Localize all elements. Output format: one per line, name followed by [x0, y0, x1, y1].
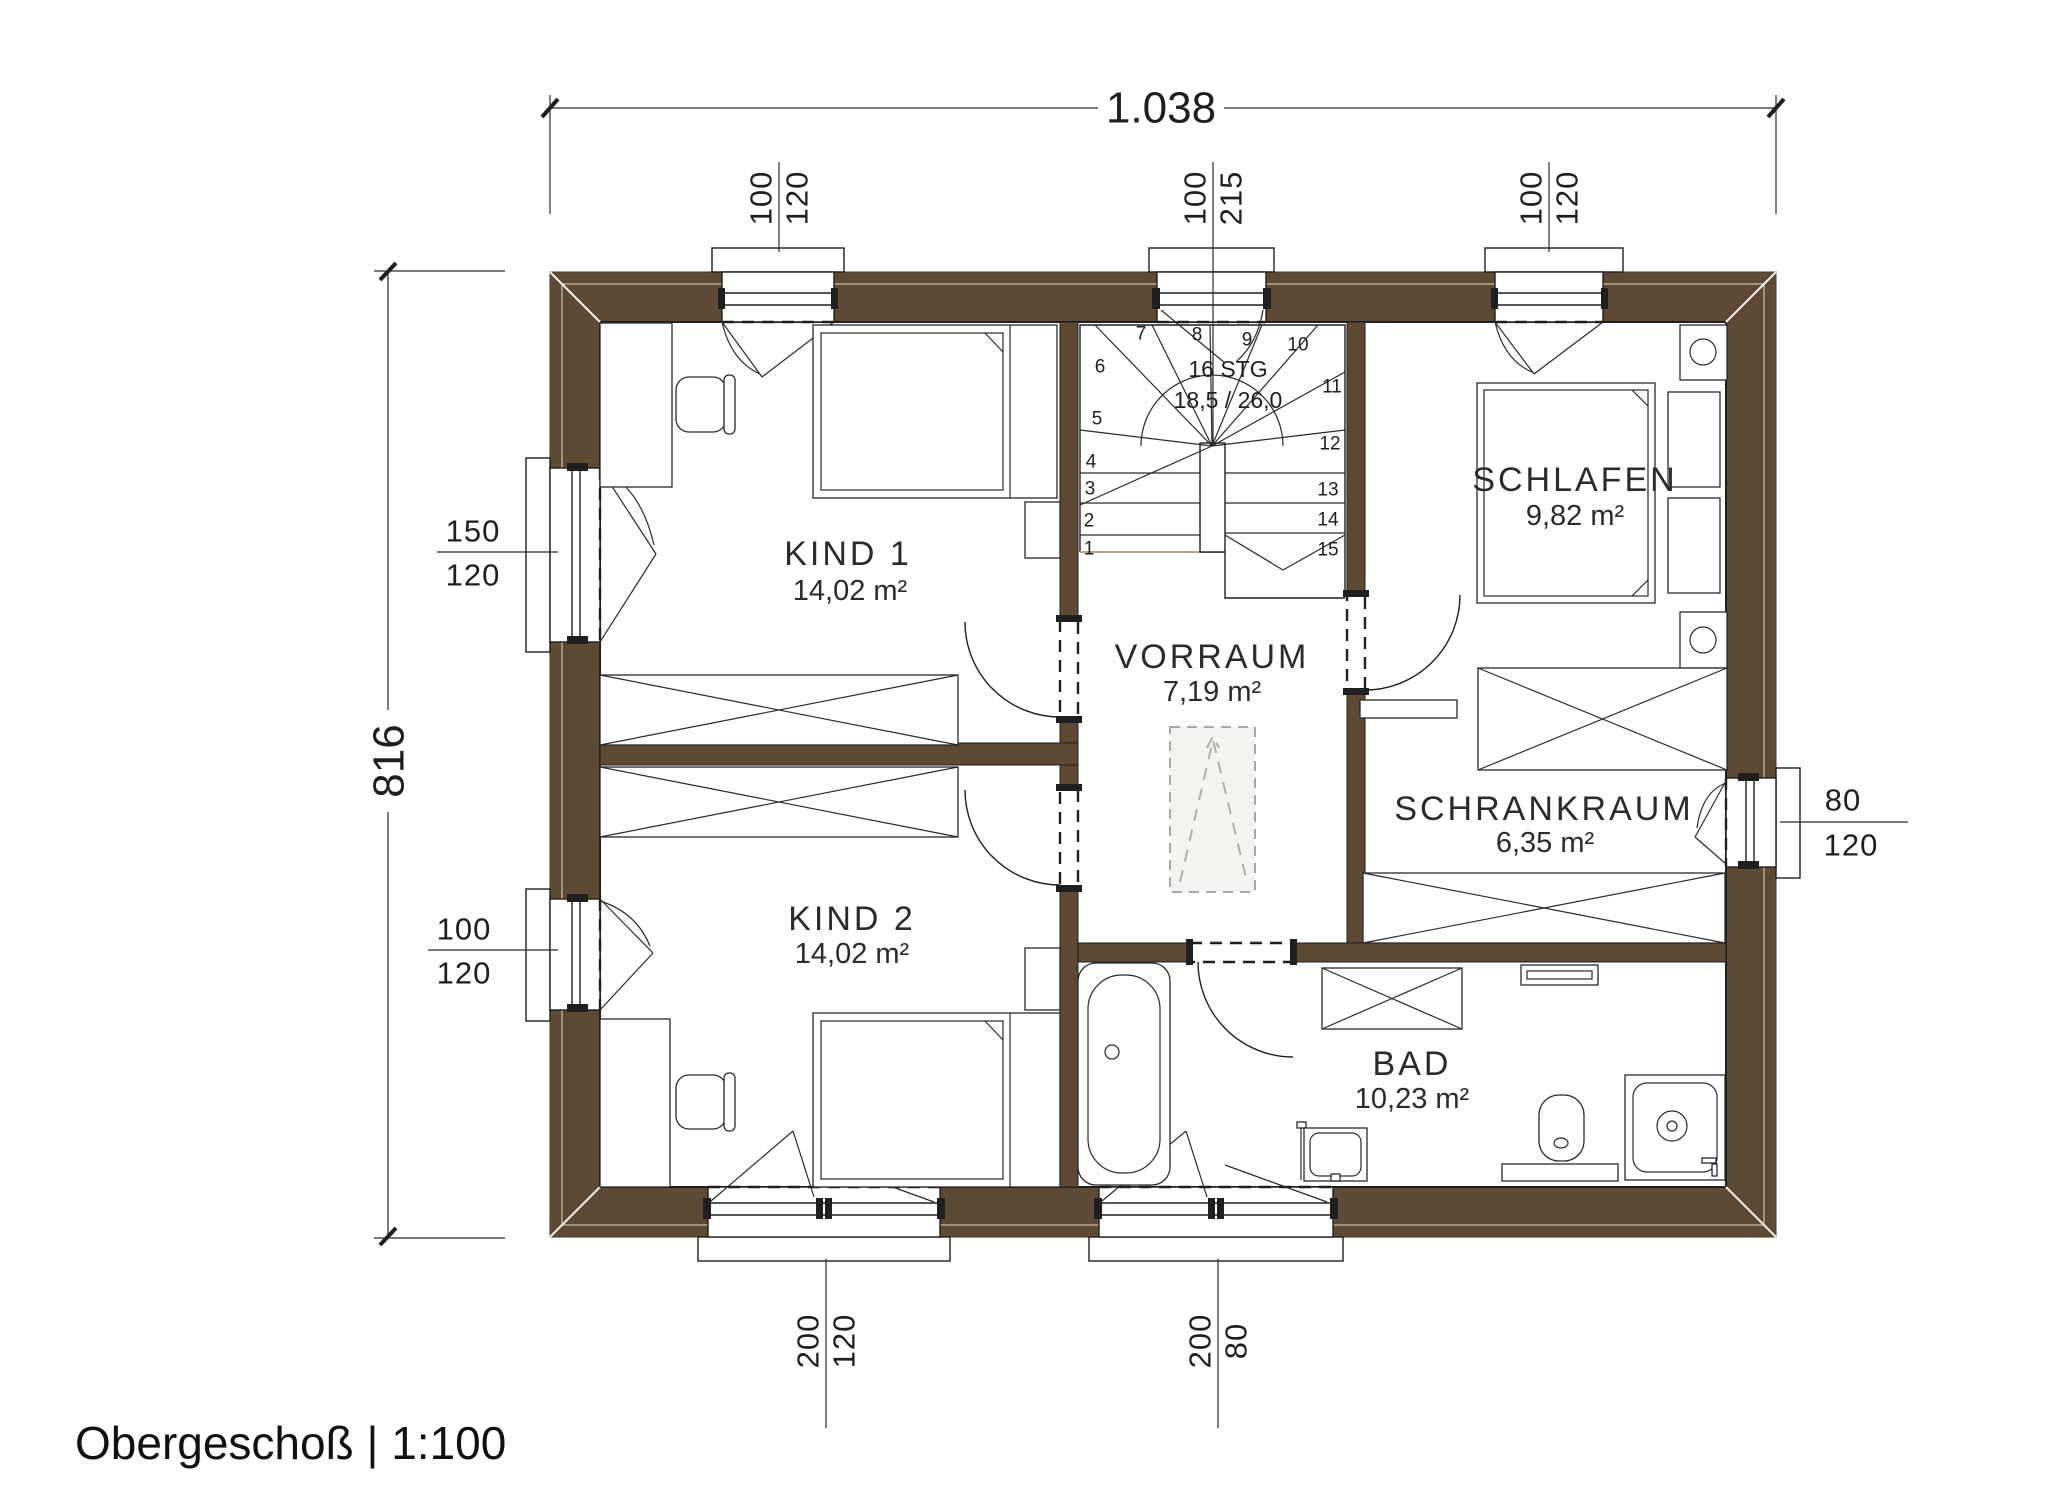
wall-kind-vorraum-upper [1060, 322, 1078, 620]
wall-shelf [1521, 965, 1598, 985]
door-bad [1186, 939, 1297, 1057]
shelf [1025, 948, 1060, 1010]
room-name-bad: BAD [1373, 1045, 1452, 1083]
svg-text:100: 100 [1178, 171, 1213, 226]
shower [1625, 1075, 1725, 1180]
room-name-kind1: KIND 1 [784, 535, 912, 573]
wall-vorraum-schlafen-upper [1347, 322, 1365, 595]
desk-chair-back [724, 375, 735, 434]
window-schrankraum-right [1695, 768, 1800, 878]
window-schlafen-top [1485, 248, 1623, 374]
svg-text:9: 9 [1242, 330, 1253, 351]
dimension-window-bottom-1: 200 120 [791, 1259, 862, 1428]
door-kind1 [965, 615, 1082, 723]
stair-spine [1200, 443, 1225, 552]
dimension-window-bottom-2: 200 80 [1183, 1259, 1254, 1428]
wall-bad-top [1293, 943, 1726, 962]
room-name-schrankraum: SCHRANKRAUM [1394, 790, 1693, 828]
wall-kind1-kind2 [600, 743, 1078, 765]
furniture-schlafen [1477, 325, 1727, 770]
bathtub [1078, 963, 1170, 1185]
room-area-kind2: 14,02 m² [795, 938, 910, 970]
attic-ladder-box [1170, 727, 1255, 892]
svg-text:120: 120 [827, 1314, 862, 1369]
svg-text:2: 2 [1084, 511, 1095, 532]
rail [1360, 700, 1457, 718]
desk-chair [676, 377, 726, 432]
svg-text:12: 12 [1319, 434, 1340, 455]
stair-steps-label: 16 STG [1188, 356, 1267, 382]
svg-text:80: 80 [1219, 1323, 1254, 1359]
svg-text:120: 120 [437, 956, 492, 991]
dimension-overall-width: 1.038 [542, 84, 1784, 215]
floorplan-page: 16 STG 18,5 / 26,0 1 2 3 4 5 6 7 8 9 10 … [0, 0, 2066, 1508]
room-name-kind2: KIND 2 [788, 900, 916, 938]
overall-height-value: 816 [365, 724, 414, 797]
dimension-overall-height: 816 [365, 263, 506, 1245]
wardrobe-schlafen [1478, 668, 1727, 770]
stair-rise-run-label: 18,5 / 26,0 [1174, 387, 1283, 413]
room-area-schrankraum: 6,35 m² [1496, 827, 1595, 859]
svg-text:100: 100 [744, 171, 779, 226]
svg-text:80: 80 [1825, 783, 1861, 818]
furniture-kind2 [600, 767, 1060, 1187]
wardrobe-schrankraum [1363, 873, 1725, 943]
door-kind2 [965, 784, 1082, 892]
room-name-vorraum: VORRAUM [1115, 638, 1310, 676]
svg-text:1: 1 [1084, 539, 1095, 560]
svg-text:150: 150 [446, 514, 501, 549]
room-area-kind1: 14,02 m² [793, 575, 908, 607]
nightstand [1025, 502, 1060, 558]
floorplan-drawing: 16 STG 18,5 / 26,0 1 2 3 4 5 6 7 8 9 10 … [0, 0, 2066, 1508]
overall-width-value: 1.038 [1106, 84, 1216, 133]
wall-vorraum-bad-left [1078, 943, 1190, 962]
desk [600, 1019, 670, 1187]
svg-text:14: 14 [1317, 510, 1339, 531]
svg-text:13: 13 [1317, 480, 1338, 501]
bad-cabinet [1322, 968, 1462, 1029]
svg-text:100: 100 [437, 912, 492, 947]
svg-text:200: 200 [791, 1314, 826, 1369]
room-area-bad: 10,23 m² [1355, 1083, 1470, 1115]
dimension-window-top-3: 100 120 [1514, 162, 1585, 252]
svg-text:11: 11 [1322, 377, 1342, 398]
side-table-bottom [1680, 612, 1727, 668]
svg-text:4: 4 [1086, 452, 1097, 473]
dimension-window-top-1: 100 120 [744, 162, 815, 252]
svg-text:120: 120 [1550, 171, 1585, 226]
bed [813, 325, 1057, 498]
room-area-schlafen: 9,82 m² [1526, 500, 1625, 532]
svg-text:7: 7 [1136, 324, 1147, 345]
side-table-top [1680, 325, 1727, 380]
desk-chair-back [724, 1073, 735, 1131]
room-name-schlafen: SCHLAFEN [1472, 461, 1677, 499]
svg-text:3: 3 [1085, 479, 1096, 500]
svg-text:120: 120 [780, 171, 815, 226]
wall-kind-vorraum-lower [1060, 888, 1078, 1187]
svg-text:215: 215 [1214, 171, 1249, 226]
furniture-kind1 [600, 323, 1060, 745]
svg-text:5: 5 [1092, 409, 1103, 430]
headboard-lower [1668, 498, 1720, 593]
bidet [1297, 1122, 1367, 1181]
toilet [1502, 1095, 1618, 1181]
room-area-vorraum: 7,19 m² [1163, 676, 1262, 708]
svg-text:100: 100 [1514, 171, 1549, 226]
svg-text:120: 120 [1824, 828, 1879, 863]
svg-text:200: 200 [1183, 1314, 1218, 1369]
wall-vorraum-schrankraum-lower [1347, 690, 1365, 962]
window-kind2-left [526, 889, 653, 1021]
door-schlafen [1343, 590, 1460, 695]
wardrobe-kind2 [600, 767, 958, 837]
wardrobe-kind1 [600, 675, 958, 745]
door-balcony-top [1149, 248, 1274, 363]
svg-text:15: 15 [1317, 540, 1338, 561]
attic-ladder [1170, 727, 1255, 892]
drawing-title: Obergeschoß | 1:100 [75, 1417, 506, 1469]
desk-chair [676, 1075, 726, 1129]
svg-text:6: 6 [1095, 357, 1106, 378]
bed [813, 1013, 1060, 1187]
desk [600, 323, 672, 487]
svg-text:120: 120 [446, 558, 501, 593]
svg-text:10: 10 [1287, 335, 1308, 356]
